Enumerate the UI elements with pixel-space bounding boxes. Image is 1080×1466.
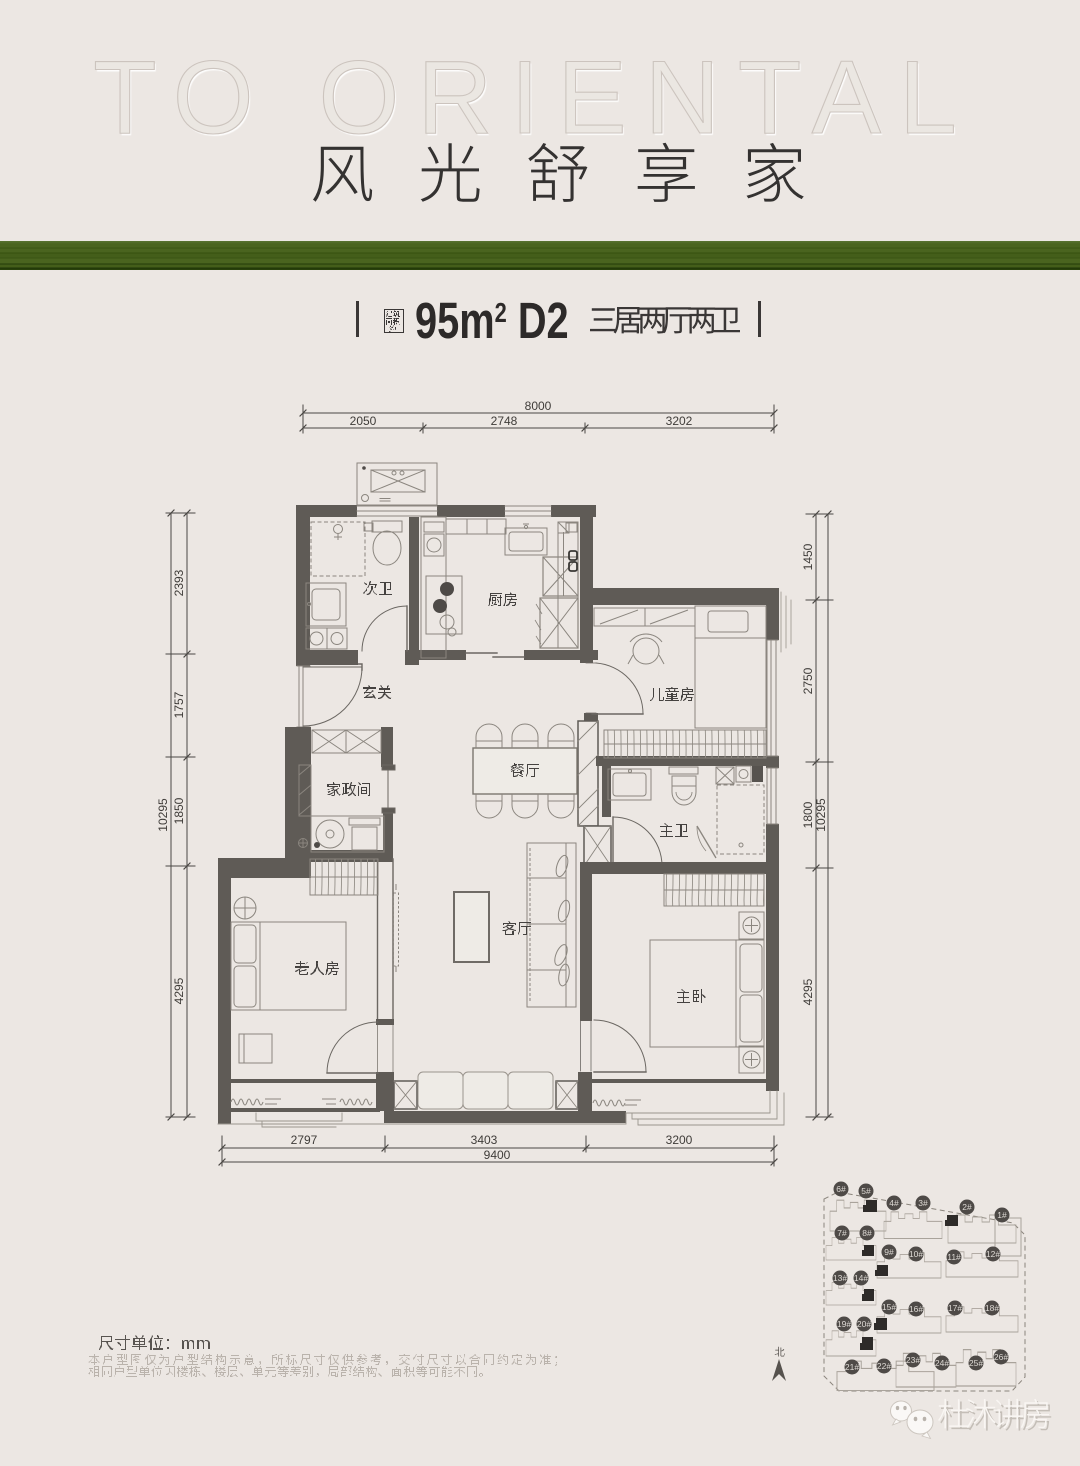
svg-text:3403: 3403 [471, 1133, 498, 1147]
svg-text:21#: 21# [845, 1362, 859, 1372]
svg-text:4295: 4295 [172, 977, 186, 1004]
svg-text:20#: 20# [857, 1319, 871, 1329]
svg-text:2750: 2750 [801, 667, 815, 694]
svg-text:25#: 25# [969, 1358, 983, 1368]
svg-text:15#: 15# [882, 1302, 896, 1312]
svg-text:10#: 10# [909, 1249, 923, 1259]
svg-text:1757: 1757 [172, 691, 186, 718]
svg-text:10295: 10295 [814, 798, 828, 832]
svg-text:11#: 11# [947, 1252, 961, 1262]
svg-text:4#: 4# [889, 1198, 899, 1208]
svg-text:1#: 1# [997, 1210, 1007, 1220]
svg-text:7#: 7# [837, 1228, 847, 1238]
svg-text:4295: 4295 [801, 978, 815, 1005]
svg-text:19#: 19# [837, 1319, 851, 1329]
svg-text:12#: 12# [986, 1249, 1000, 1259]
svg-text:2050: 2050 [350, 414, 377, 428]
svg-text:1450: 1450 [801, 543, 815, 570]
svg-text:2#: 2# [962, 1202, 972, 1212]
svg-text:14#: 14# [854, 1273, 868, 1283]
svg-text:3202: 3202 [666, 414, 693, 428]
svg-text:3200: 3200 [666, 1133, 693, 1147]
svg-text:16#: 16# [909, 1304, 923, 1314]
svg-text:1850: 1850 [172, 797, 186, 824]
svg-text:5#: 5# [861, 1186, 871, 1196]
svg-text:13#: 13# [833, 1273, 847, 1283]
svg-text:2797: 2797 [291, 1133, 318, 1147]
svg-text:8#: 8# [862, 1228, 872, 1238]
svg-text:9400: 9400 [484, 1148, 511, 1162]
svg-text:6#: 6# [836, 1184, 846, 1194]
svg-text:23#: 23# [906, 1355, 920, 1365]
svg-text:2748: 2748 [491, 414, 518, 428]
svg-text:1800: 1800 [801, 801, 815, 828]
svg-text:17#: 17# [948, 1303, 962, 1313]
svg-text:18#: 18# [985, 1303, 999, 1313]
svg-text:24#: 24# [935, 1358, 949, 1368]
svg-text:2393: 2393 [172, 569, 186, 596]
svg-text:26#: 26# [994, 1352, 1008, 1362]
svg-text:10295: 10295 [156, 798, 170, 832]
svg-text:3#: 3# [918, 1198, 928, 1208]
svg-text:8000: 8000 [525, 399, 552, 413]
svg-text:9#: 9# [884, 1247, 894, 1257]
svg-text:22#: 22# [877, 1361, 891, 1371]
